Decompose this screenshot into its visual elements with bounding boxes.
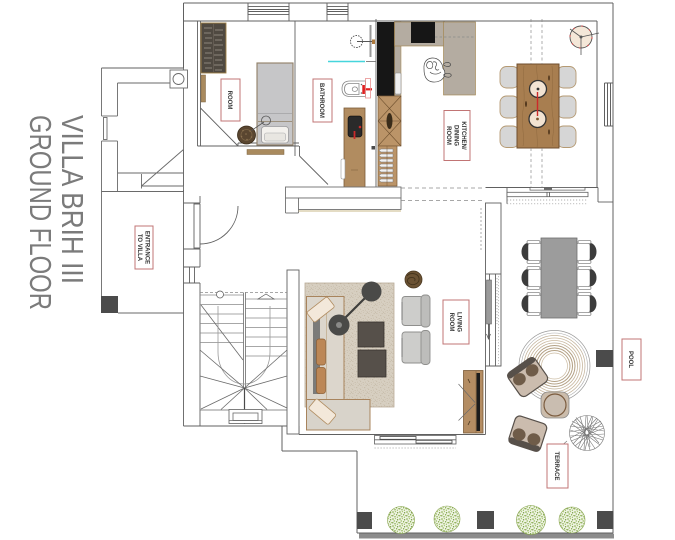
- svg-text:TERRACE: TERRACE: [553, 451, 559, 480]
- svg-text:GROUND FLOOR: GROUND FLOOR: [23, 115, 58, 310]
- svg-text:BATHROOM: BATHROOM: [318, 83, 324, 118]
- svg-text:LIVINGROOM: LIVINGROOM: [448, 312, 462, 332]
- svg-text:ENTRANCETO VILLA: ENTRANCETO VILLA: [136, 231, 150, 264]
- svg-text:ROOM: ROOM: [226, 91, 232, 110]
- svg-text:POOL: POOL: [627, 351, 633, 368]
- svg-text:VILLA BRIH III: VILLA BRIH III: [55, 115, 90, 284]
